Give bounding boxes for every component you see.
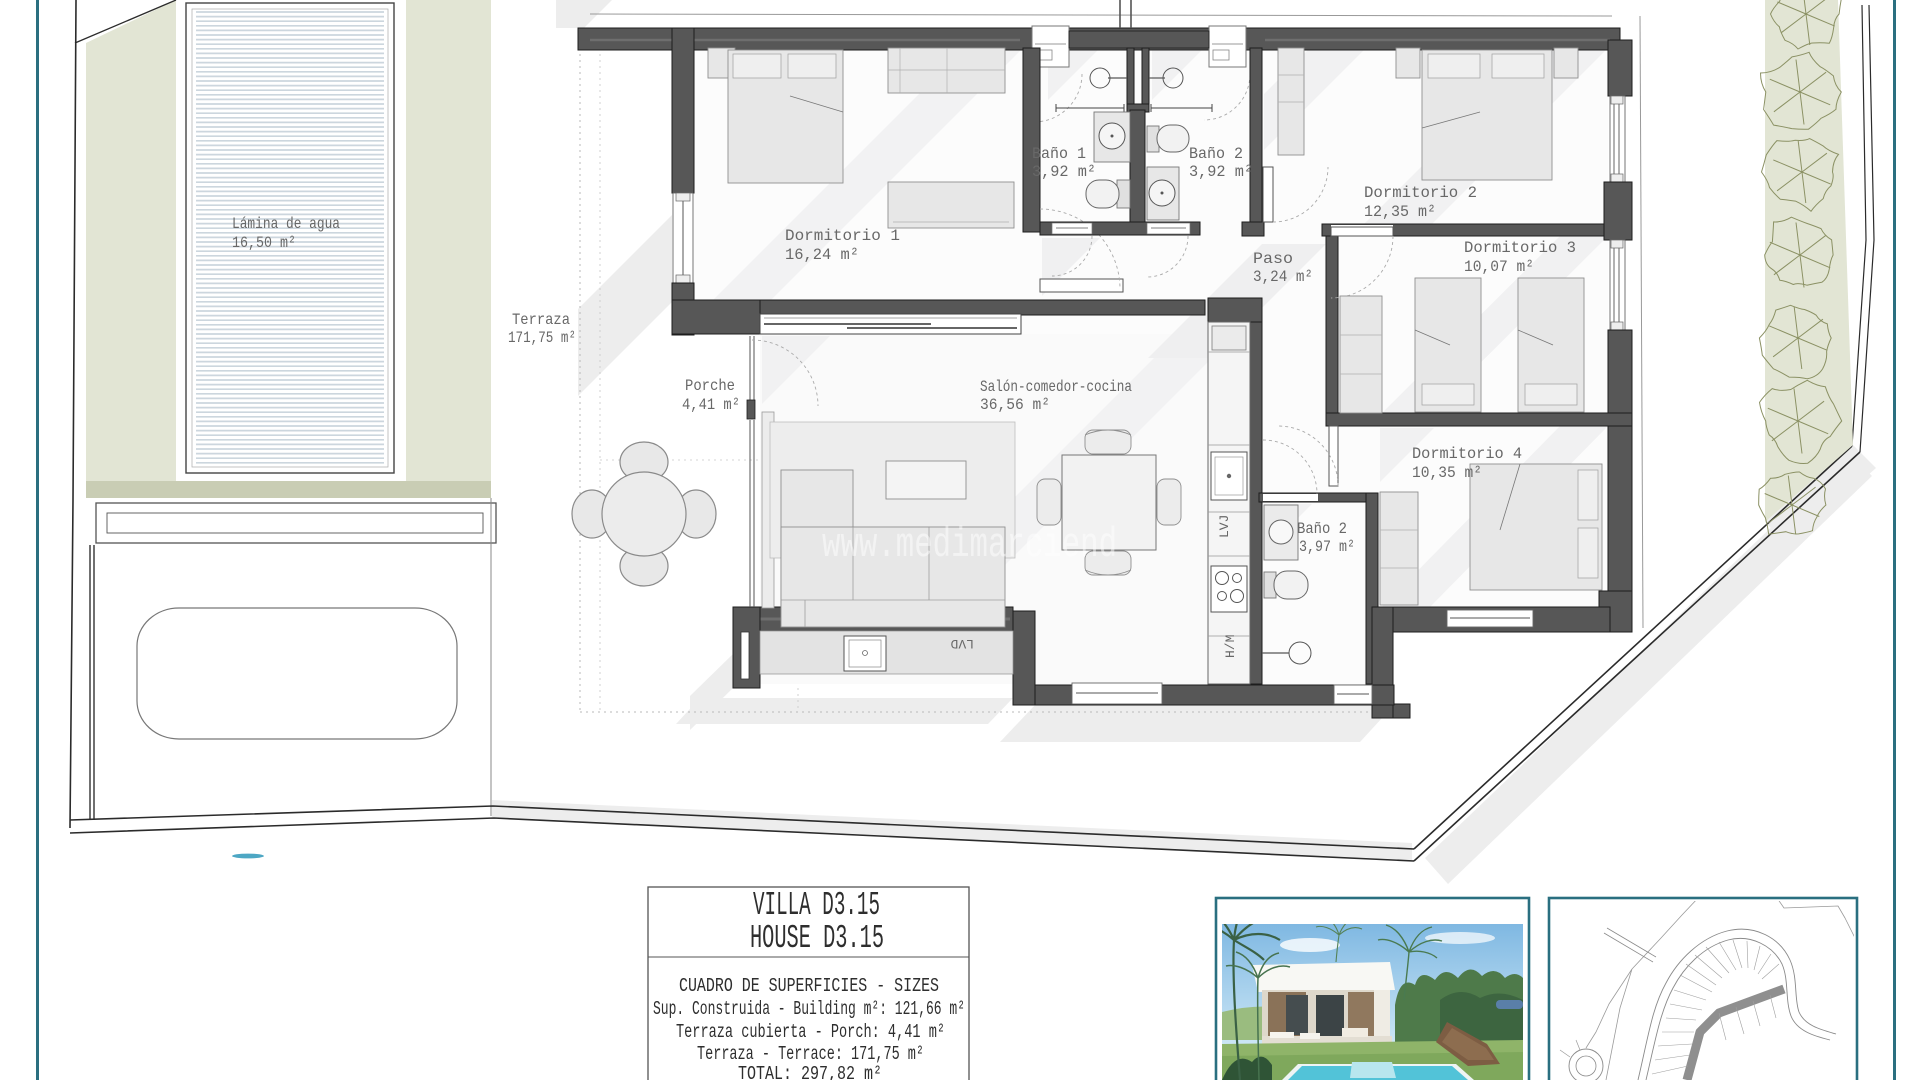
svg-text:12,35 m²: 12,35 m² [1364, 203, 1436, 221]
svg-text:H/M: H/M [1223, 635, 1238, 658]
svg-text:Salón-comedor-cocina: Salón-comedor-cocina [980, 378, 1132, 396]
svg-text:Dormitorio 3: Dormitorio 3 [1464, 239, 1576, 257]
svg-text:3,97 m²: 3,97 m² [1299, 538, 1355, 556]
svg-text:www.medimarciend: www.medimarciend [822, 521, 1117, 569]
svg-text:16,24 m²: 16,24 m² [785, 246, 859, 264]
svg-text:Baño 2: Baño 2 [1297, 520, 1347, 538]
svg-text:HOUSE D3.15: HOUSE D3.15 [750, 920, 884, 957]
svg-text:Porche: Porche [685, 377, 735, 395]
svg-text:TOTAL: 297,82 m²: TOTAL: 297,82 m² [738, 1063, 882, 1080]
svg-text:Lámina de agua: Lámina de agua [232, 215, 340, 233]
svg-text:10,07 m²: 10,07 m² [1464, 258, 1534, 276]
svg-text:LVD: LVD [950, 636, 974, 651]
svg-text:3,24 m²: 3,24 m² [1253, 268, 1313, 286]
svg-text:Baño 2: Baño 2 [1189, 145, 1243, 163]
svg-text:Terraza: Terraza [512, 311, 570, 329]
svg-text:Baño 1: Baño 1 [1032, 145, 1086, 163]
svg-text:Paso: Paso [1253, 250, 1293, 268]
svg-text:10,35 m²: 10,35 m² [1412, 464, 1482, 482]
svg-text:Sup. Construida - Building m²: Sup. Construida - Building m²: 121,66 m² [653, 998, 965, 1020]
svg-text:4,41 m²: 4,41 m² [682, 396, 740, 414]
svg-text:LVJ: LVJ [1217, 515, 1232, 538]
svg-text:3,92 m²: 3,92 m² [1189, 163, 1253, 181]
svg-text:3,92 m²: 3,92 m² [1032, 163, 1096, 181]
svg-text:Dormitorio 4: Dormitorio 4 [1412, 445, 1522, 463]
svg-text:36,56 m²: 36,56 m² [980, 396, 1050, 414]
svg-text:Dormitorio 1: Dormitorio 1 [785, 227, 900, 245]
svg-text:Dormitorio 2: Dormitorio 2 [1364, 184, 1477, 202]
svg-text:171,75 m²: 171,75 m² [508, 329, 576, 347]
svg-text:Terraza - Terrace: 171,75 m²: Terraza - Terrace: 171,75 m² [697, 1043, 924, 1065]
svg-text:16,50 m²: 16,50 m² [232, 234, 296, 252]
svg-text:CUADRO DE SUPERFICIES - SIZES: CUADRO DE SUPERFICIES - SIZES [679, 975, 939, 997]
svg-text:Terraza cubierta - Porch: 4,4: Terraza cubierta - Porch: 4,41 m² [676, 1021, 945, 1043]
svg-text:VILLA D3.15: VILLA D3.15 [753, 887, 880, 924]
